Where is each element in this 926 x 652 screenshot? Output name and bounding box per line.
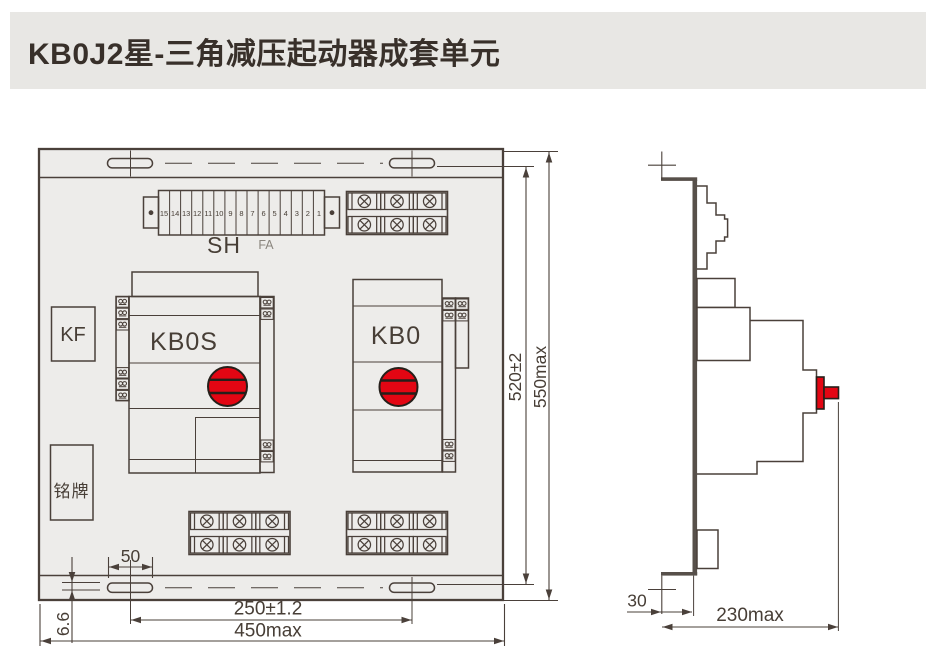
kb0-label: KB0: [371, 322, 421, 350]
dim-label-550: 550max: [530, 346, 550, 409]
terminal-number: 4: [284, 209, 288, 218]
component-step-lower: [697, 308, 750, 361]
terminal-number: 12: [193, 209, 201, 218]
page: KB0J2星-三角减压起动器成套单元: [0, 0, 926, 652]
kbos-rotary-knob[interactable]: [208, 367, 247, 406]
terminal-number: 10: [215, 209, 223, 218]
dim-label-520: 520±2: [505, 353, 525, 402]
mounting-plate: [693, 180, 698, 575]
side-view: 30 230max: [627, 152, 839, 632]
top-centermark: [648, 152, 676, 181]
terminal-number: 14: [171, 209, 179, 218]
dim-label-6-6: 6.6: [53, 612, 73, 636]
terminal-number: 13: [182, 209, 190, 218]
terminal-number: 1: [317, 209, 321, 218]
strip-end-dot: [149, 210, 154, 215]
strip-label-sh: SH: [207, 232, 241, 258]
bottom-block-side: [697, 530, 718, 569]
terminal-number: 2: [306, 209, 310, 218]
bottom-centermark: [648, 576, 676, 614]
terminal-number: 5: [273, 209, 277, 218]
front-view: 15 14 13 12 11 10 9 8 7 6 5 4 3 2 1 SH: [39, 149, 558, 646]
kbos-label: KB0S: [150, 328, 218, 356]
kf-label: KF: [60, 324, 86, 346]
dim-label-50: 50: [121, 546, 141, 566]
technical-drawing: 15 14 13 12 11 10 9 8 7 6 5 4 3 2 1 SH: [0, 0, 926, 652]
strip-side-profile: [697, 186, 728, 269]
strip-numbers: 15 14 13 12 11 10 9 8 7 6 5 4 3 2 1: [160, 209, 321, 218]
kb0-rotary-knob[interactable]: [380, 368, 418, 406]
terminal-number: 8: [239, 209, 243, 218]
component-step-upper: [697, 279, 735, 308]
terminal-number: 6: [262, 209, 266, 218]
terminal-number: 9: [228, 209, 232, 218]
terminal-number: 11: [204, 209, 212, 218]
nameplate-label: 铭牌: [54, 482, 90, 501]
bottom-flange: [661, 572, 697, 576]
top-flange: [661, 177, 697, 181]
terminal-number: 15: [160, 209, 168, 218]
terminal-number: 3: [295, 209, 299, 218]
strip-label-fa: FA: [258, 238, 274, 252]
knob-side-base: [817, 377, 825, 409]
terminal-number: 7: [250, 209, 254, 218]
side-view-dimensions: 30 230max: [627, 402, 838, 631]
dim-label-30: 30: [627, 591, 647, 611]
dim-label-250: 250±1.2: [234, 599, 303, 620]
knob-side-handle[interactable]: [824, 387, 839, 399]
strip-end-dot: [330, 210, 335, 215]
dim-label-450: 450max: [234, 621, 302, 642]
dim-label-230: 230max: [716, 605, 784, 626]
